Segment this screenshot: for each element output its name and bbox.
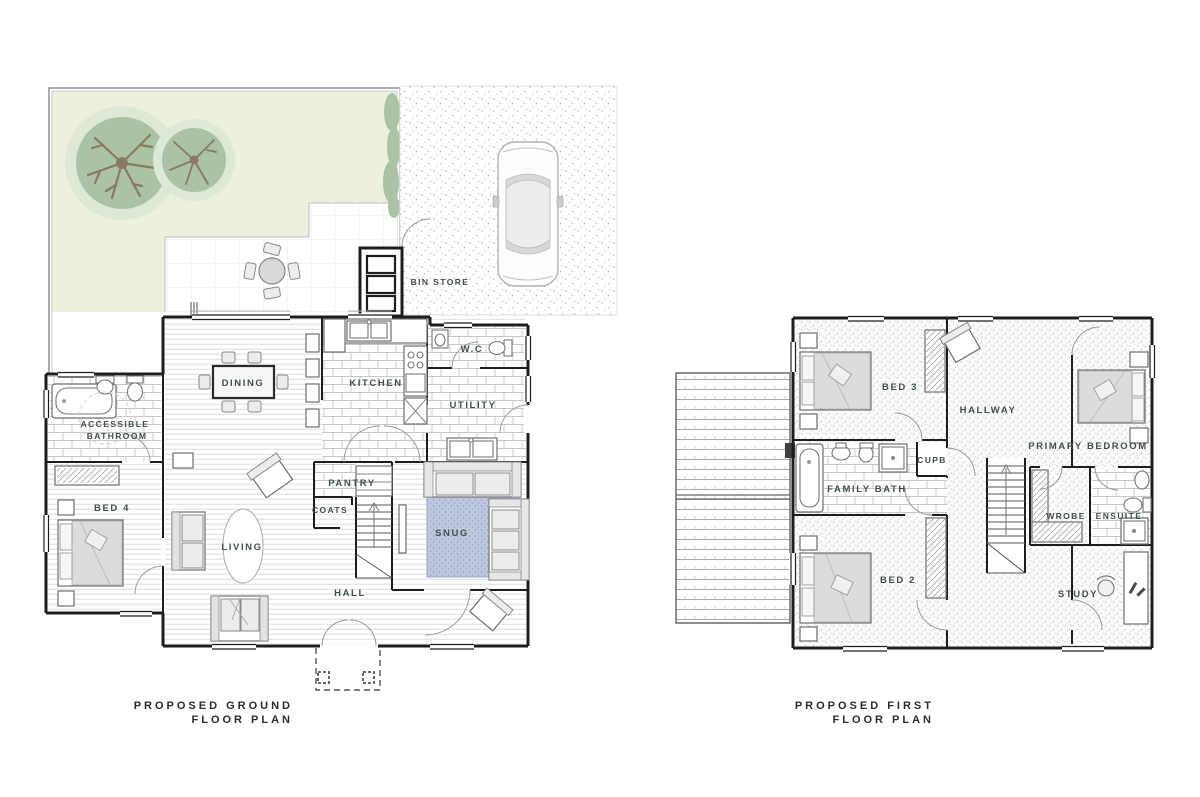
bin bbox=[367, 296, 395, 311]
hallway-label: HALLWAY bbox=[960, 405, 1017, 416]
tv-unit bbox=[173, 453, 193, 468]
ground-floor-plan: BIN STORE bbox=[42, 86, 617, 726]
hall-sofa bbox=[211, 596, 268, 641]
coats-label: COATS bbox=[312, 505, 348, 515]
bed3-label: BED 3 bbox=[882, 382, 918, 393]
ground-floor-title-line1: PROPOSED GROUND bbox=[134, 700, 293, 712]
kitchen-label: KITCHEN bbox=[349, 378, 402, 389]
family-bath-label: FAMILY BATH bbox=[827, 484, 907, 495]
snug-sofa-right bbox=[489, 499, 529, 580]
tree bbox=[153, 119, 235, 201]
utility-sink bbox=[447, 438, 497, 460]
snug-label: SNUG bbox=[435, 528, 469, 539]
first-floor-plan: BED 3 HALLWAY PRIMARY BEDROOM CUPB FAMIL… bbox=[676, 314, 1156, 726]
bed4-label: BED 4 bbox=[94, 503, 130, 514]
bathroom-toilet bbox=[127, 376, 143, 401]
living-label: LIVING bbox=[221, 542, 262, 553]
roof bbox=[676, 373, 796, 623]
bin bbox=[367, 256, 395, 273]
hall-radiator bbox=[55, 466, 119, 485]
dining-label: DINING bbox=[222, 378, 265, 389]
study-label: STUDY bbox=[1058, 589, 1098, 600]
cupb-label: CUPB bbox=[917, 455, 947, 465]
bed2-label: BED 2 bbox=[880, 575, 916, 586]
living-sofa bbox=[172, 512, 205, 570]
ground-floor-title-line2: FLOOR PLAN bbox=[192, 714, 294, 726]
back-door bbox=[524, 405, 532, 433]
pantry-label: PANTRY bbox=[328, 478, 376, 489]
bin-store bbox=[360, 248, 402, 316]
bin bbox=[367, 276, 395, 293]
wc-label: W.C bbox=[461, 344, 484, 355]
ensuite-label: ENSUITE bbox=[1096, 511, 1143, 521]
hall-label: HALL bbox=[334, 588, 366, 599]
accessible-bathroom-label-line2: BATHROOM bbox=[87, 431, 148, 441]
first-floor-title-line2: FLOOR PLAN bbox=[833, 714, 935, 726]
kitchen-hob bbox=[404, 346, 427, 424]
primary-bedroom-label: PRIMARY BEDROOM bbox=[1028, 441, 1148, 452]
utility-label: UTILITY bbox=[449, 400, 496, 411]
snug-sofa-top bbox=[424, 462, 521, 497]
bin-store-label: BIN STORE bbox=[411, 277, 470, 287]
porch bbox=[316, 648, 380, 690]
wrobe-label: WROBE bbox=[1046, 511, 1086, 521]
car bbox=[493, 142, 563, 286]
snug-radiator bbox=[399, 505, 406, 553]
floor-plans-drawing: BIN STORE bbox=[0, 0, 1200, 797]
first-floor-title-line1: PROPOSED FIRST bbox=[795, 700, 934, 712]
bathroom-basin bbox=[96, 376, 114, 394]
bed2-wardrobe bbox=[926, 518, 946, 598]
accessible-bathroom-label-line1: ACCESSIBLE bbox=[81, 419, 150, 429]
